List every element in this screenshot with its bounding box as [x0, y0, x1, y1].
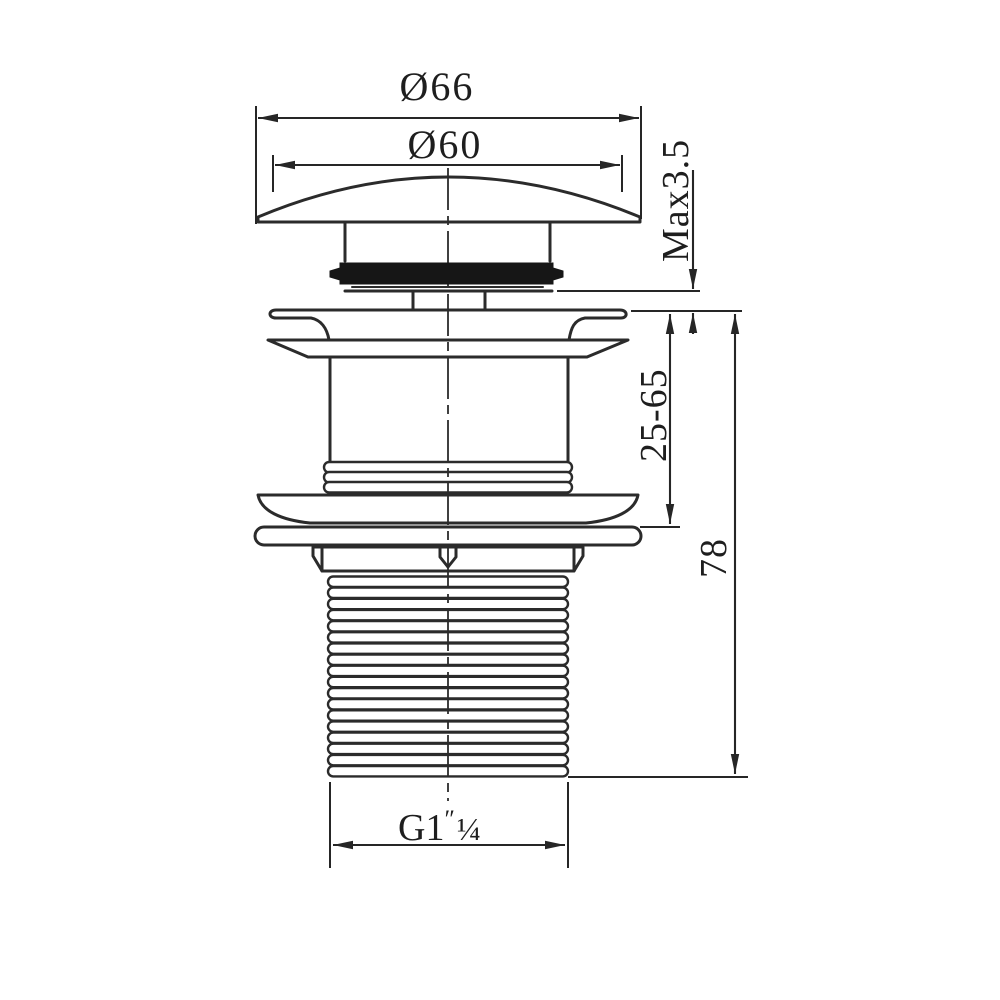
dim-label-body-length: 78: [693, 538, 735, 578]
thread-size-prime: ″: [444, 806, 454, 833]
thread-size-fraction: ¼: [457, 811, 481, 847]
dim-body-length: 78: [693, 314, 735, 774]
gasket-stem: [413, 291, 485, 310]
rubber-gasket: [330, 263, 563, 291]
dim-label-clamping-range: 25-65: [633, 368, 675, 462]
dim-label-cap-top: Ø60: [408, 122, 483, 167]
dim-clamping-range: 25-65: [633, 314, 675, 524]
body-cylinder: [330, 357, 568, 462]
dim-thread-size: G1″¼: [333, 806, 565, 849]
dim-label-cap-outer: Ø66: [400, 64, 475, 109]
dim-cap-outer-diameter: Ø66: [258, 64, 639, 118]
thread-size-main: G1: [398, 807, 444, 849]
cap-dome: [258, 177, 640, 222]
dim-label-max-gap: Max3.5: [655, 139, 697, 262]
dim-cap-top-diameter: Ø60: [275, 122, 620, 167]
dim-label-thread-size: G1″¼: [398, 806, 481, 849]
pop-up-drain-diagram: Ø66 Ø60 Max3.5 25-65 78 G1″¼: [0, 0, 1000, 1000]
technical-drawing-canvas: Ø66 Ø60 Max3.5 25-65 78 G1″¼: [0, 0, 1000, 1000]
dim-max-gap: Max3.5: [655, 139, 697, 334]
